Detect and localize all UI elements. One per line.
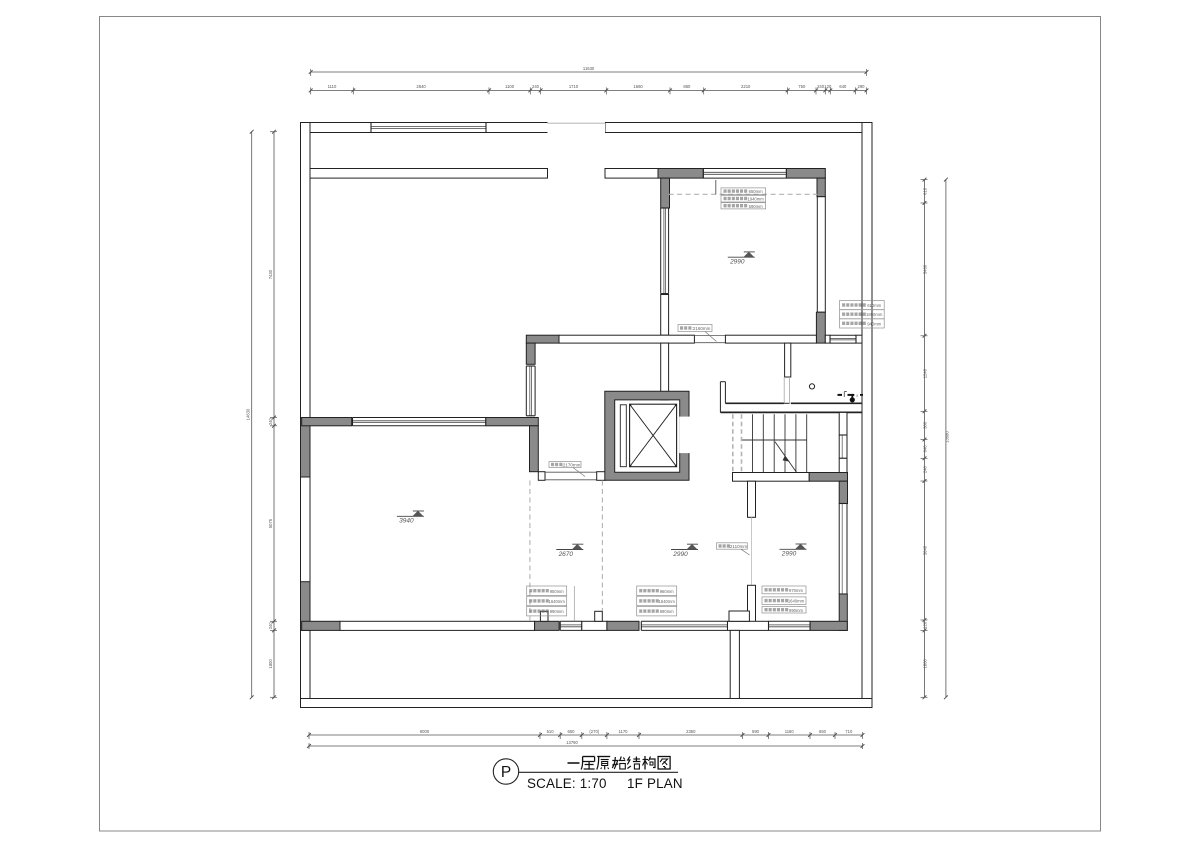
svg-text:120: 120 [923, 621, 928, 629]
svg-text:2640: 2640 [416, 84, 426, 89]
svg-text:860: 860 [683, 84, 691, 89]
svg-text:2350: 2350 [686, 729, 696, 734]
svg-text:7430: 7430 [268, 269, 273, 279]
svg-text:650: 650 [568, 729, 576, 734]
svg-text:120: 120 [824, 84, 832, 89]
svg-text:2990: 2990 [781, 551, 797, 558]
svg-text:(270): (270) [589, 729, 599, 734]
svg-text:13790: 13790 [566, 740, 578, 745]
svg-text:990mm: 990mm [789, 608, 803, 613]
svg-text:2670: 2670 [558, 551, 574, 558]
svg-text:240: 240 [923, 465, 928, 473]
svg-text:1110: 1110 [328, 84, 337, 89]
svg-text:3640: 3640 [923, 545, 928, 555]
svg-text:590mm: 590mm [749, 204, 763, 209]
svg-text::2110mm: :2110mm [729, 544, 748, 549]
svg-text:1640mm: 1640mm [549, 599, 566, 604]
svg-text:510: 510 [547, 729, 555, 734]
svg-text:2990: 2990 [729, 259, 745, 266]
svg-text:290: 290 [858, 84, 866, 89]
svg-text::2160mm: :2160mm [692, 326, 711, 331]
svg-text:650mm: 650mm [749, 189, 763, 194]
svg-text:11630: 11630 [583, 66, 595, 71]
svg-text:1710: 1710 [569, 84, 579, 89]
svg-text:950mm: 950mm [550, 589, 564, 594]
svg-text:970mm: 970mm [789, 588, 803, 593]
svg-text:590: 590 [752, 729, 760, 734]
svg-text:5075: 5075 [268, 518, 273, 528]
svg-text:6000: 6000 [420, 729, 430, 734]
svg-text:1660: 1660 [633, 84, 643, 89]
svg-text:1800: 1800 [268, 658, 273, 668]
svg-text:2990: 2990 [672, 551, 688, 558]
svg-text:1240: 1240 [923, 368, 928, 378]
svg-text:13580: 13580 [944, 431, 949, 443]
svg-text:610: 610 [923, 187, 928, 195]
svg-text:1940mm: 1940mm [747, 197, 764, 202]
svg-text:750: 750 [798, 84, 806, 89]
svg-text:240: 240 [532, 84, 540, 89]
svg-text:1160: 1160 [785, 729, 795, 734]
svg-text:610mm: 610mm [867, 303, 881, 308]
svg-text:1640mm: 1640mm [659, 599, 676, 604]
svg-text:3460: 3460 [923, 264, 928, 274]
svg-text:960mm: 960mm [660, 589, 674, 594]
svg-text:1800: 1800 [923, 658, 928, 668]
svg-text:380: 380 [923, 421, 928, 429]
svg-text:240: 240 [268, 622, 273, 630]
svg-text::2170mm: :2170mm [562, 463, 581, 468]
svg-text:710: 710 [845, 729, 853, 734]
svg-text:240: 240 [268, 417, 273, 425]
svg-text:650: 650 [819, 729, 827, 734]
svg-text:P: P [501, 764, 511, 781]
svg-text:1100: 1100 [505, 84, 515, 89]
svg-text:1640mm: 1640mm [788, 599, 805, 604]
svg-text:2210: 2210 [741, 84, 751, 89]
svg-text:940mm: 940mm [867, 321, 881, 326]
svg-text:SCALE: 1:70: SCALE: 1:70 [527, 776, 607, 791]
svg-text:640: 640 [839, 84, 847, 89]
svg-text:3940: 3940 [399, 518, 414, 525]
svg-text:1850mm: 1850mm [866, 312, 883, 317]
svg-text:990mm: 990mm [550, 609, 564, 614]
svg-text:990mm: 990mm [660, 609, 674, 614]
svg-text:1F PLAN: 1F PLAN [627, 776, 683, 791]
svg-text:1170: 1170 [618, 729, 628, 734]
svg-text:14630: 14630 [246, 408, 251, 420]
svg-text:640: 640 [923, 445, 928, 453]
